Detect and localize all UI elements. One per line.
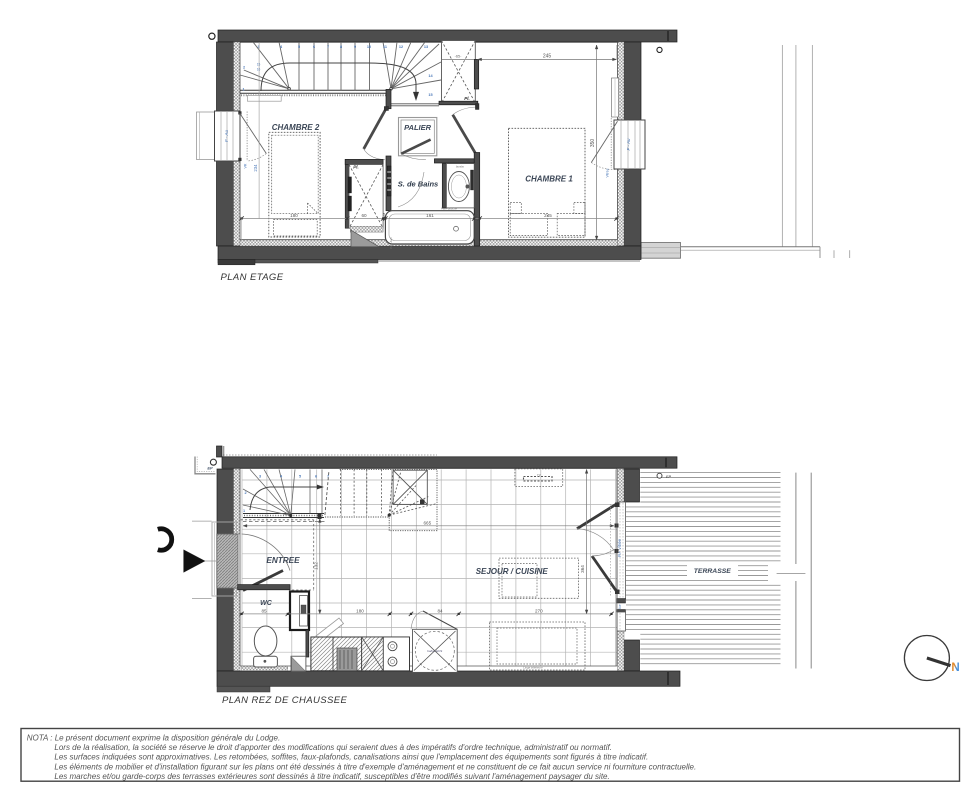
svg-text:Les surfaces indiquées sont ap: Les surfaces indiquées sont approximativ… [54,753,648,762]
svg-text:Les marches et/ou garde-corps: Les marches et/ou garde-corps des terras… [54,772,609,781]
svg-text:CHAMBRE 2: CHAMBRE 2 [272,123,320,132]
svg-text:2: 2 [244,491,246,495]
svg-text:Vitrée: Vitrée [606,168,610,177]
svg-text:13: 13 [424,45,428,49]
svg-text:CHAMBRE 1: CHAMBRE 1 [525,175,573,184]
svg-text:Pare-douche: Pare-douche [441,207,457,211]
svg-text:8: 8 [340,45,342,49]
svg-text:Pl.: Pl. [353,165,359,170]
svg-text:11: 11 [383,45,387,49]
svg-text:lavabo: lavabo [456,165,465,169]
svg-text:180: 180 [356,608,364,613]
svg-text:5: 5 [298,45,300,49]
svg-text:TERRASSE: TERRASSE [694,568,731,575]
svg-text:10: 10 [367,45,371,49]
svg-text:350: 350 [590,139,596,148]
svg-text:7: 7 [327,475,329,479]
svg-text:Linge intérieure: Linge intérieure [523,666,543,670]
svg-text:15: 15 [257,63,261,67]
svg-text:3: 3 [259,475,261,479]
svg-text:60: 60 [361,213,367,218]
svg-text:-65-: -65- [455,55,462,59]
svg-text:16: 16 [257,68,261,72]
svg-text:7: 7 [327,45,329,49]
svg-text:84: 84 [437,608,443,613]
svg-text:270: 270 [535,608,543,613]
svg-text:1: 1 [242,88,244,92]
svg-text:PLAN REZ DE CHAUSSEE: PLAN REZ DE CHAUSSEE [222,695,347,706]
svg-text:N: N [951,662,959,674]
svg-text:6: 6 [315,475,317,479]
svg-text:Pl.: Pl. [464,96,470,101]
svg-text:Lors de la réalisation, la soc: Lors de la réalisation, la société se ré… [54,743,612,752]
svg-text:PLAN ETAGE: PLAN ETAGE [221,272,284,283]
svg-text:180: 180 [290,213,298,218]
svg-text:9: 9 [354,45,356,49]
svg-text:364: 364 [580,565,585,573]
svg-text:SEJOUR / CUISINE: SEJOUR / CUISINE [476,567,549,576]
svg-text:665: 665 [423,520,431,525]
svg-text:EP: EP [666,475,672,479]
svg-text:WC: WC [260,600,273,607]
svg-text:85: 85 [261,608,267,613]
svg-text:2: 2 [243,66,245,70]
svg-text:F - Au: F - Au [224,130,229,143]
svg-text:VR: VR [244,163,248,168]
svg-text:245: 245 [544,213,552,218]
svg-text:P.F Vitrée: P.F Vitrée [617,538,622,557]
svg-text:161: 161 [426,213,434,218]
svg-text:15: 15 [428,93,432,97]
svg-text:F - Au: F - Au [626,138,631,151]
svg-text:PALIER: PALIER [404,123,432,132]
svg-text:245: 245 [543,54,552,60]
svg-text:5: 5 [383,213,385,217]
svg-text:234: 234 [253,164,258,172]
svg-text:EP: EP [207,465,213,470]
svg-text:S. de Bains: S. de Bains [398,180,438,189]
svg-text:6: 6 [313,45,315,49]
svg-text:Les éléments de mobilier et d': Les éléments de mobilier et d'installati… [54,762,696,771]
svg-text:5: 5 [299,475,301,479]
svg-text:12: 12 [399,45,403,49]
svg-text:5: 5 [477,213,479,217]
svg-text:1: 1 [243,509,245,513]
svg-text:ballon ECS: ballon ECS [427,649,442,653]
svg-text:NOTA : Le présent document exp: NOTA : Le présent document exprime la di… [27,734,280,743]
svg-text:Pare-bain: Pare-bain [389,237,393,249]
svg-text:132: 132 [313,562,318,570]
